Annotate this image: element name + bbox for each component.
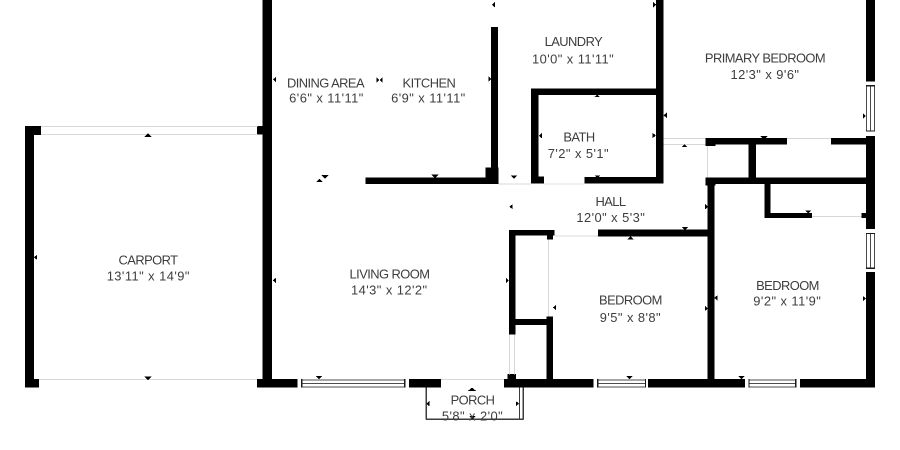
- svg-text:9'2" x 11'9": 9'2" x 11'9": [753, 294, 821, 309]
- svg-text:PORCH: PORCH: [451, 393, 495, 408]
- svg-text:PRIMARY BEDROOM: PRIMARY BEDROOM: [705, 51, 825, 66]
- svg-text:12'3" x 9'6": 12'3" x 9'6": [731, 67, 800, 82]
- svg-text:BEDROOM: BEDROOM: [756, 278, 819, 293]
- svg-text:6'9" x 11'11": 6'9" x 11'11": [391, 91, 466, 106]
- svg-text:10'0" x 11'11": 10'0" x 11'11": [532, 51, 614, 66]
- svg-text:7'2" x 5'1": 7'2" x 5'1": [548, 146, 609, 161]
- svg-text:LIVING ROOM: LIVING ROOM: [350, 267, 430, 282]
- svg-text:DINING AREA: DINING AREA: [287, 75, 365, 90]
- svg-text:12'0" x 5'3": 12'0" x 5'3": [576, 210, 645, 225]
- svg-text:LAUNDRY: LAUNDRY: [545, 34, 603, 49]
- svg-text:5'8" x 2'0": 5'8" x 2'0": [442, 409, 503, 424]
- svg-text:14'3" x 12'2": 14'3" x 12'2": [351, 282, 428, 297]
- svg-text:13'11" x 14'9": 13'11" x 14'9": [107, 269, 190, 284]
- svg-text:HALL: HALL: [595, 194, 625, 209]
- svg-text:KITCHEN: KITCHEN: [403, 75, 456, 90]
- svg-text:BEDROOM: BEDROOM: [599, 293, 662, 308]
- svg-text:CARPORT: CARPORT: [119, 253, 179, 268]
- svg-text:6'6" x 11'11": 6'6" x 11'11": [289, 91, 364, 106]
- svg-text:BATH: BATH: [563, 130, 594, 145]
- svg-text:9'5" x 8'8": 9'5" x 8'8": [600, 310, 661, 325]
